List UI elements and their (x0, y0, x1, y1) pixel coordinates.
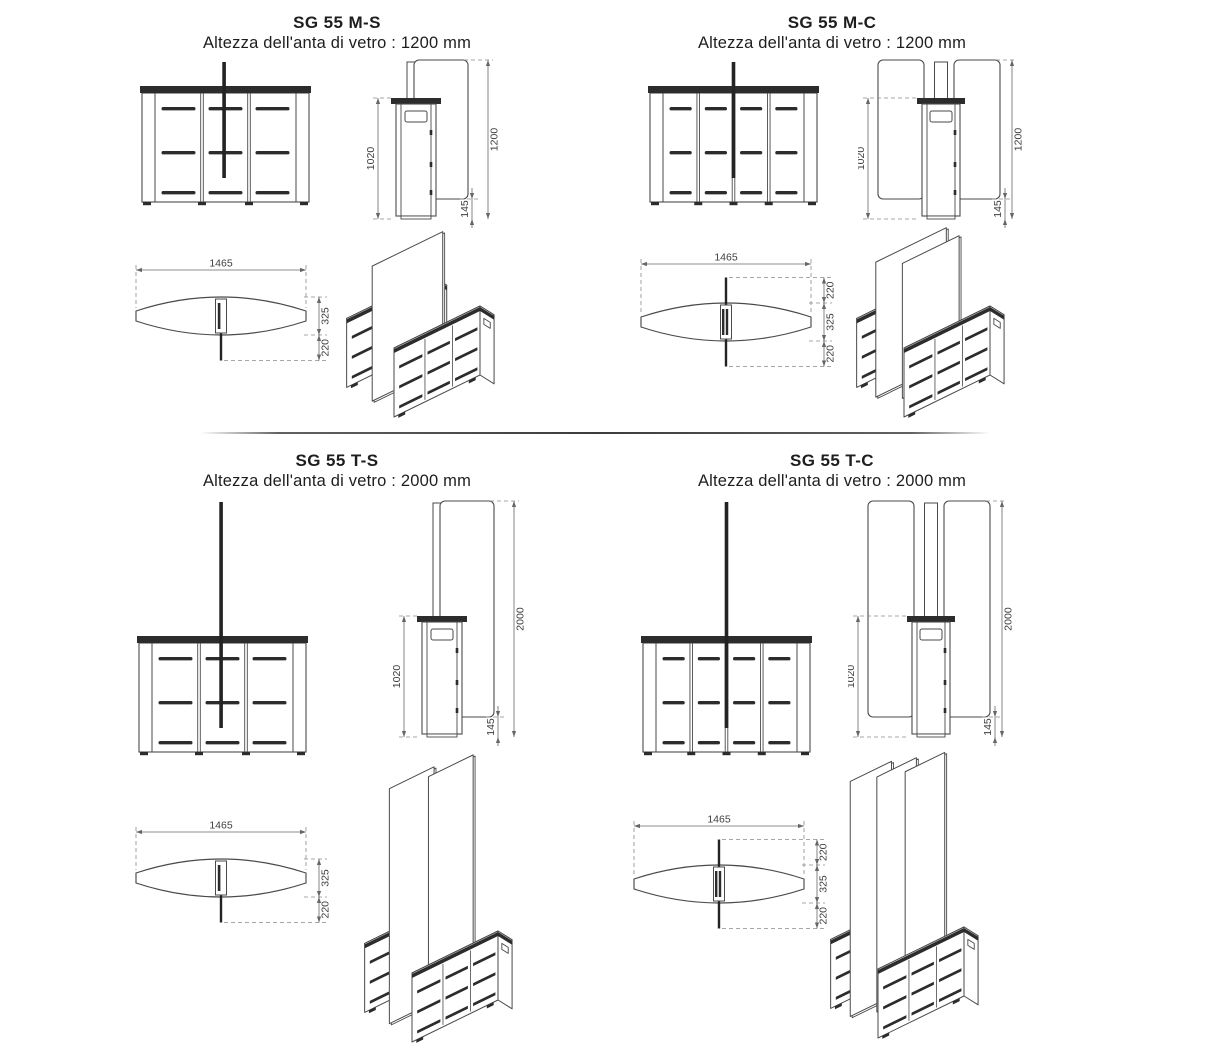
model-title: SG 55 T-S (137, 450, 537, 471)
side-elevation: 10201200145 (365, 60, 501, 228)
dimension-label: 325 (320, 307, 332, 325)
model-header: SG 55 M-S Altezza dell'anta di vetro : 1… (137, 12, 537, 54)
top-plan-view: 1465325220 (120, 256, 345, 374)
top-plan-view: 1465325220 (120, 818, 345, 936)
top-plan-view: 1465325220220 (618, 812, 843, 950)
dimension-label: 325 (825, 313, 837, 331)
panel-sg-55-m-c: SG 55 M-C Altezza dell'anta di vetro : 1… (568, 8, 1068, 434)
panel-sg-55-m-s: SG 55 M-S Altezza dell'anta di vetro : 1… (60, 8, 560, 434)
model-subtitle: Altezza dell'anta di vetro : 2000 mm (632, 471, 1032, 492)
dimension-label: 1465 (209, 820, 233, 832)
dimension-label: 2000 (1003, 607, 1015, 631)
top-plan: 1465325220 (136, 820, 332, 923)
model-title: SG 55 T-C (632, 450, 1032, 471)
isometric (831, 752, 978, 1038)
spec-sheet: SG 55 M-S Altezza dell'anta di vetro : 1… (0, 0, 1221, 1052)
dimension-label: 145 (992, 200, 1004, 218)
dimension-label: 1020 (391, 665, 403, 689)
isometric-view (362, 752, 557, 1050)
side-elevation-view: 10202000145 (848, 496, 1016, 746)
dimension-label: 220 (320, 901, 332, 919)
side-elevation-view: 10201200145 (360, 50, 502, 228)
dimension-label: 220 (825, 281, 837, 299)
front-elevation (137, 502, 308, 755)
model-subtitle: Altezza dell'anta di vetro : 2000 mm (137, 471, 537, 492)
isometric (347, 232, 494, 418)
side-elevation: 10201200145 (858, 60, 1025, 228)
model-title: SG 55 M-C (632, 12, 1032, 33)
model-header: SG 55 T-C Altezza dell'anta di vetro : 2… (632, 450, 1032, 492)
front-elevation-view (634, 496, 819, 758)
front-elevation-view (130, 496, 315, 758)
panel-sg-55-t-c: SG 55 T-C Altezza dell'anta di vetro : 2… (560, 446, 1080, 1052)
top-plan: 1465325220220 (634, 814, 830, 929)
dimension-label: 220 (320, 339, 332, 357)
front-elevation-view (641, 56, 826, 208)
dimension-label: 1465 (714, 252, 738, 264)
dimension-label: 145 (982, 718, 994, 736)
dimension-label: 220 (825, 345, 837, 363)
front-elevation (140, 62, 311, 205)
dimension-label: 325 (320, 869, 332, 887)
dimension-label: 2000 (515, 607, 527, 631)
model-header: SG 55 M-C Altezza dell'anta di vetro : 1… (632, 12, 1032, 54)
isometric-view (856, 220, 1051, 425)
side-elevation: 10202000145 (848, 501, 1015, 746)
isometric-view (346, 220, 541, 425)
top-plan: 1465325220 (136, 258, 332, 361)
dimension-label: 1465 (707, 814, 731, 826)
side-elevation-view: 10202000145 (386, 496, 528, 746)
section-divider (200, 432, 990, 434)
panel-sg-55-t-s: SG 55 T-S Altezza dell'anta di vetro : 2… (60, 446, 560, 1052)
isometric-view (828, 748, 1023, 1046)
side-elevation: 10202000145 (391, 501, 527, 746)
dimension-label: 1020 (365, 147, 377, 171)
dimension-label: 1465 (209, 258, 233, 270)
dimension-label: 1020 (858, 147, 867, 171)
model-header: SG 55 T-S Altezza dell'anta di vetro : 2… (137, 450, 537, 492)
dimension-label: 1200 (489, 128, 501, 152)
isometric (365, 755, 512, 1043)
top-plan: 1465325220220 (641, 252, 837, 367)
model-title: SG 55 M-S (137, 12, 537, 33)
dimension-label: 1020 (848, 665, 857, 689)
dimension-label: 145 (485, 718, 497, 736)
side-elevation-view: 10201200145 (858, 50, 1026, 228)
dimension-label: 1200 (1013, 128, 1025, 152)
isometric (857, 228, 1004, 418)
top-plan-view: 1465325220220 (625, 250, 850, 388)
front-elevation (648, 62, 819, 205)
front-elevation-view (133, 56, 318, 208)
dimension-label: 145 (459, 200, 471, 218)
front-elevation (641, 502, 812, 755)
